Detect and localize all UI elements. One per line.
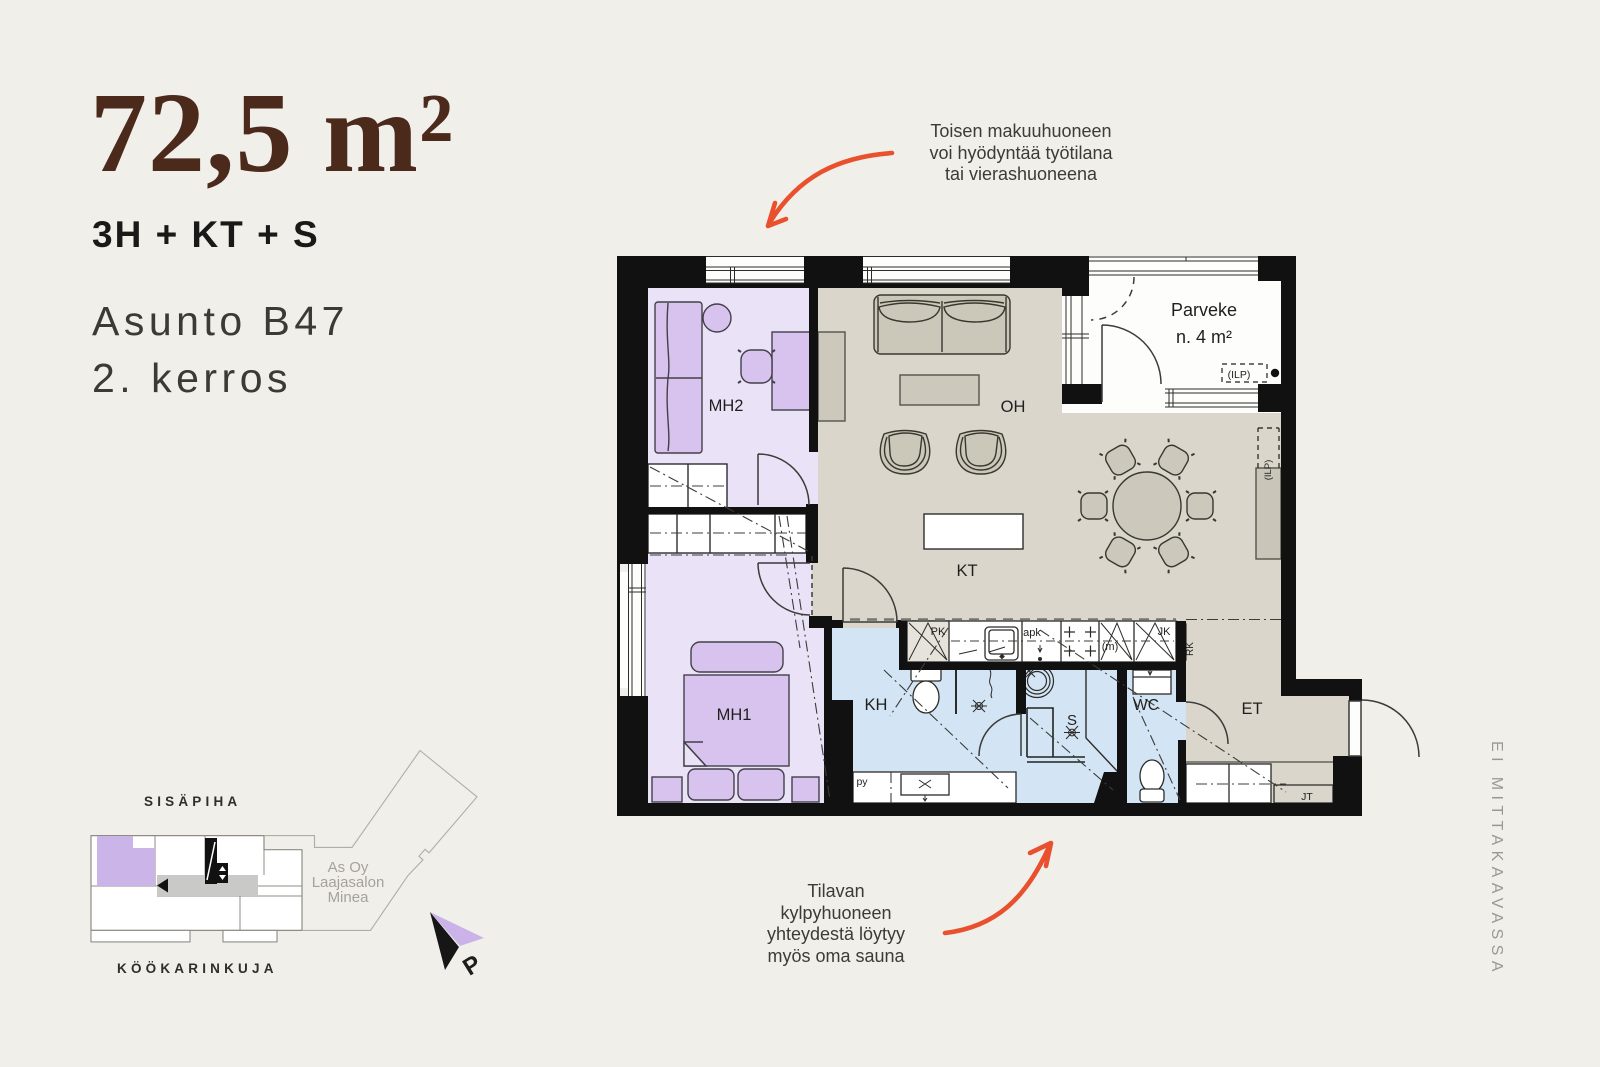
svg-text:JK: JK (1158, 626, 1172, 638)
svg-text:PK: PK (931, 626, 946, 638)
svg-text:Parveke: Parveke (1171, 300, 1237, 320)
svg-text:OH: OH (1001, 398, 1026, 416)
svg-text:(ILP): (ILP) (1263, 460, 1274, 481)
svg-text:KH: KH (865, 696, 888, 714)
svg-text:S: S (1067, 712, 1077, 729)
svg-text:MH1: MH1 (717, 706, 752, 724)
svg-text:SISÄPIHA: SISÄPIHA (144, 794, 241, 809)
svg-text:RK: RK (1185, 642, 1196, 656)
svg-text:apk: apk (1023, 627, 1041, 639)
svg-text:JT: JT (1301, 791, 1313, 803)
svg-text:(ILP): (ILP) (1228, 369, 1251, 381)
svg-text:MH2: MH2 (709, 397, 744, 415)
svg-text:KT: KT (956, 562, 977, 580)
svg-text:Minea: Minea (328, 889, 370, 906)
svg-text:(m): (m) (1102, 641, 1119, 653)
svg-text:n. 4 m²: n. 4 m² (1176, 327, 1232, 347)
svg-text:KÖÖKARINKUJA: KÖÖKARINKUJA (117, 961, 278, 976)
svg-text:py: py (856, 776, 868, 788)
svg-text:ET: ET (1241, 700, 1262, 718)
svg-text:P: P (458, 950, 486, 981)
svg-text:WC: WC (1133, 697, 1159, 714)
